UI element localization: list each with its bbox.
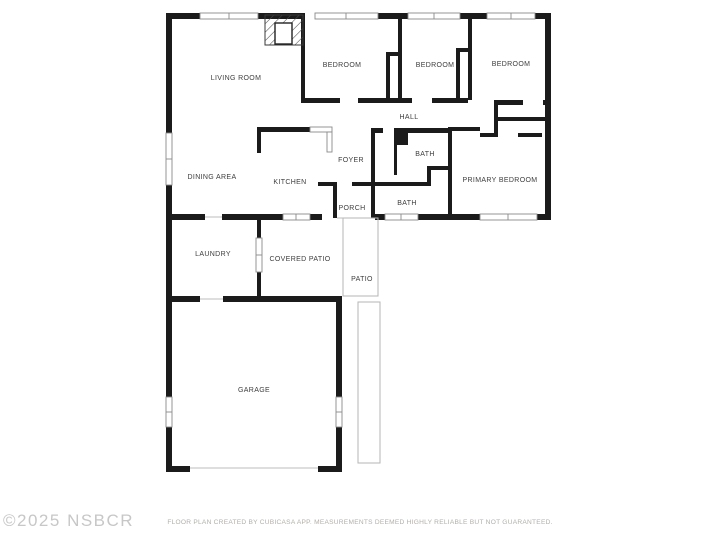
kitchen-counter: [327, 132, 332, 152]
footer-disclaimer: FLOOR PLAN CREATED BY CUBICASA APP. MEAS…: [167, 519, 552, 526]
window: [480, 214, 537, 220]
window: [283, 214, 310, 220]
page: LIVING ROOM BEDROOM BEDROOM BEDROOM HALL…: [0, 0, 720, 540]
room-label-bedroom-1: BEDROOM: [323, 62, 362, 69]
window: [315, 13, 378, 19]
room-label-bath-upper: BATH: [415, 151, 435, 158]
room-label-porch: PORCH: [338, 205, 365, 212]
room-label-dining-area: DINING AREA: [188, 174, 237, 181]
window: [166, 133, 172, 185]
patio-door: [256, 238, 262, 272]
window: [336, 397, 342, 427]
room-labels: LIVING ROOM BEDROOM BEDROOM BEDROOM HALL…: [188, 61, 538, 394]
window: [166, 397, 172, 427]
room-label-garage: GARAGE: [238, 387, 270, 394]
room-label-bedroom-3: BEDROOM: [492, 61, 531, 68]
kitchen-counter: [310, 127, 332, 132]
room-label-covered-patio: COVERED PATIO: [269, 256, 330, 263]
room-label-bedroom-2: BEDROOM: [416, 62, 455, 69]
window: [200, 13, 258, 19]
room-label-hall: HALL: [400, 114, 419, 121]
room-label-patio: PATIO: [351, 276, 373, 283]
window: [408, 13, 460, 19]
room-label-kitchen: KITCHEN: [273, 179, 306, 186]
floor-plan: LIVING ROOM BEDROOM BEDROOM BEDROOM HALL…: [0, 0, 720, 540]
room-label-living-room: LIVING ROOM: [211, 75, 262, 82]
room-label-bath-lower: BATH: [397, 200, 417, 207]
window: [487, 13, 535, 19]
watermark-text: ©2025 NSBCR: [3, 511, 134, 530]
window: [385, 214, 418, 220]
room-label-primary-bedroom: PRIMARY BEDROOM: [462, 177, 537, 184]
room-label-foyer: FOYER: [338, 157, 364, 164]
patio-outline: [343, 218, 380, 463]
room-label-laundry: LAUNDRY: [195, 251, 231, 258]
fireplace-icon: [265, 15, 303, 45]
